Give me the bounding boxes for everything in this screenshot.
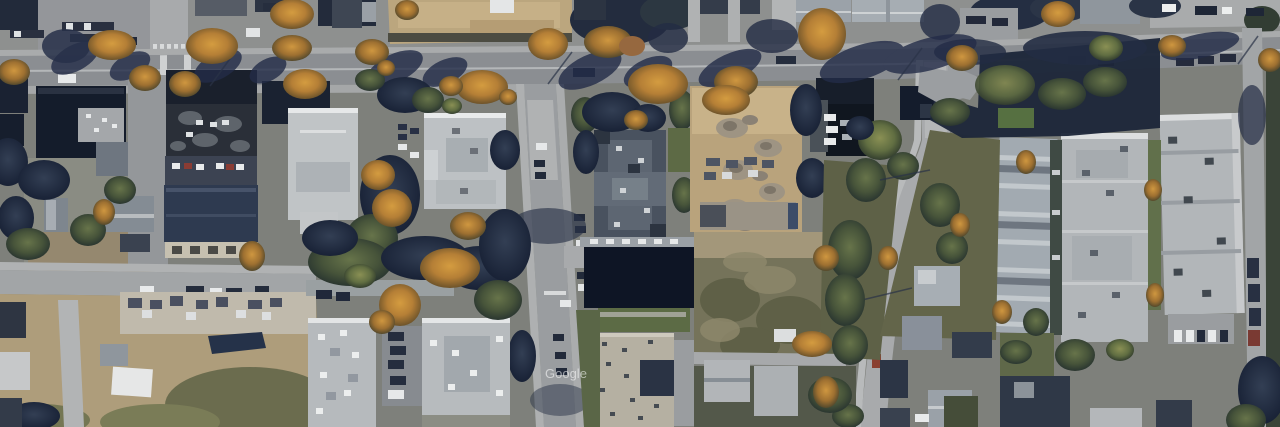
svg-text:Google: Google [545,366,587,381]
